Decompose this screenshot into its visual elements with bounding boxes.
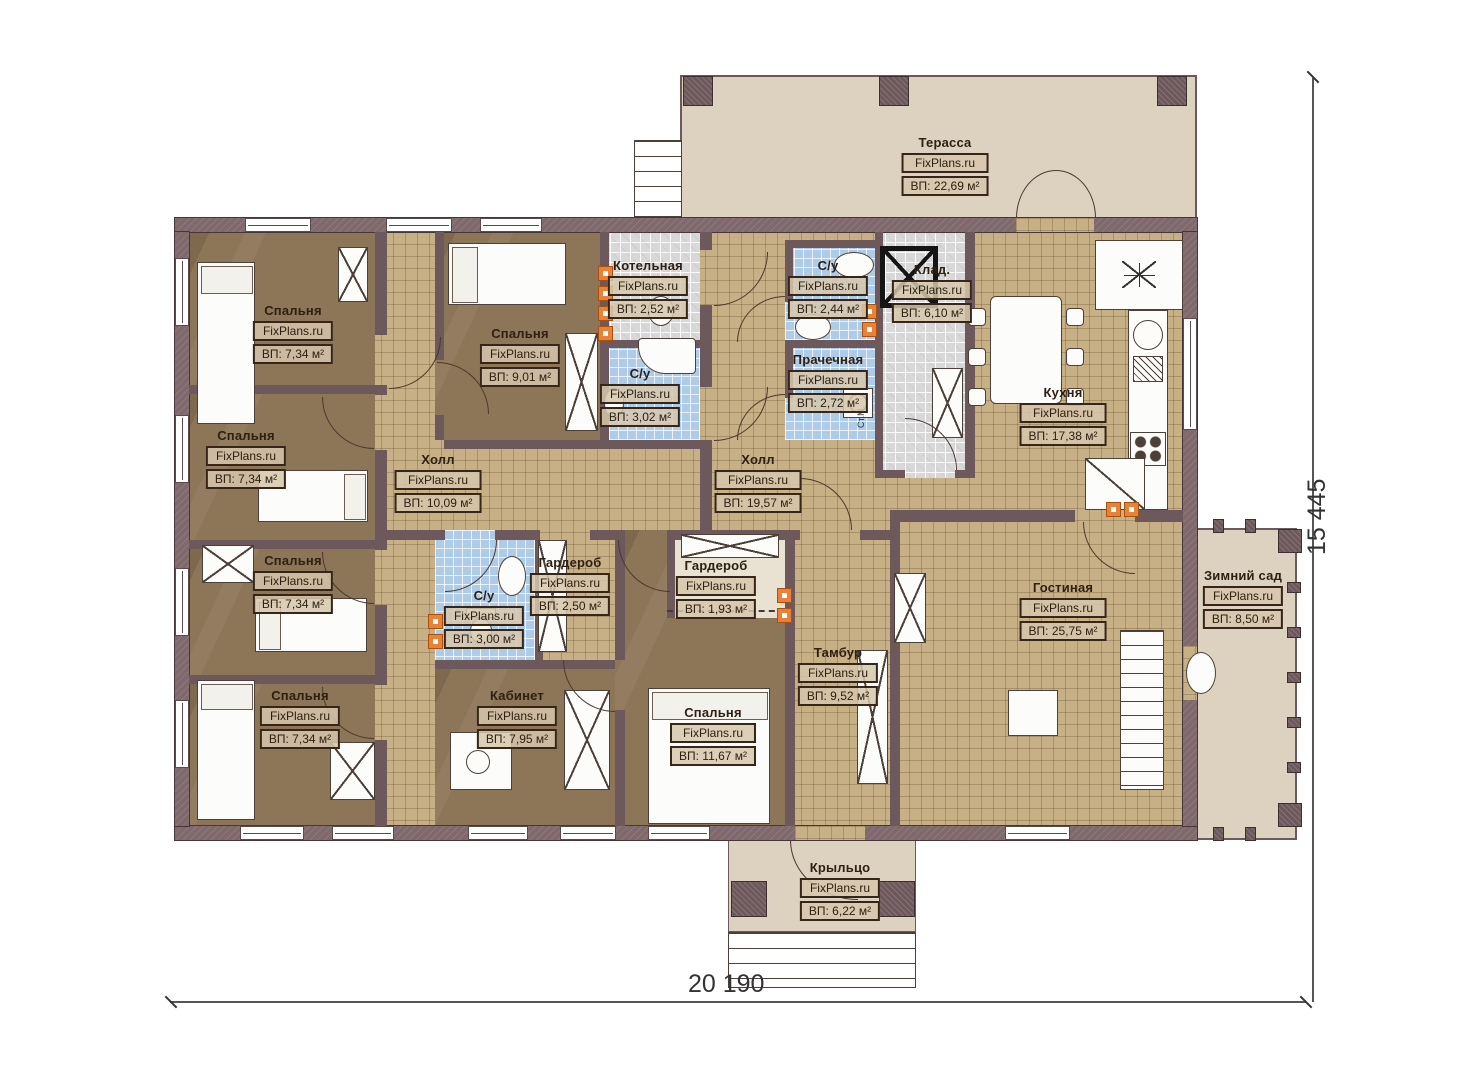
desk-chair	[466, 750, 490, 774]
room-area: ВП: 25,75 м²	[1020, 621, 1107, 641]
vent-marker	[598, 326, 613, 341]
coffee-table	[1008, 690, 1058, 736]
room-area: ВП: 1,93 м²	[676, 599, 756, 619]
bed-pillow	[201, 684, 253, 710]
wardrobe	[565, 333, 598, 431]
wall-segment	[1135, 510, 1183, 522]
wardrobe	[932, 368, 963, 438]
room-label-porch: КрыльцоFixPlans.ruВП: 6,22 м²	[800, 860, 880, 921]
vent-marker	[428, 614, 443, 629]
room-name: Кухня	[1020, 385, 1107, 400]
terrace-side-steps	[634, 140, 682, 218]
room-label-bedroom: СпальняFixPlans.ruВП: 7,34 м²	[206, 428, 286, 489]
porch-column	[732, 882, 766, 916]
garden-post	[1288, 718, 1300, 727]
room-name: Прачечная	[788, 352, 868, 367]
watermark-text: FixPlans.ru	[670, 723, 756, 743]
watermark-text: FixPlans.ru	[530, 573, 610, 593]
room-label-living: ГостинаяFixPlans.ruВП: 25,75 м²	[1020, 580, 1107, 641]
watermark-text: FixPlans.ru	[206, 446, 286, 466]
wardrobe	[338, 247, 368, 302]
room-label-boiler: КотельнаяFixPlans.ruВП: 2,52 м²	[608, 258, 688, 319]
freezer-symbol	[1095, 240, 1183, 310]
fridge	[1133, 356, 1163, 382]
wall-segment	[387, 530, 445, 540]
watermark-text: FixPlans.ru	[477, 706, 557, 726]
front-door-opening	[795, 826, 865, 840]
window	[175, 700, 189, 768]
room-label-wc: С/уFixPlans.ruВП: 2,44 м²	[788, 258, 868, 319]
wall-segment	[700, 232, 712, 250]
wall-segment	[495, 530, 540, 540]
wall-segment	[700, 305, 712, 387]
room-area: ВП: 3,00 м²	[444, 629, 524, 649]
wall-segment	[375, 605, 387, 685]
wall-segment	[955, 470, 975, 478]
chair	[968, 388, 986, 406]
room-name: Гостиная	[1020, 580, 1107, 595]
dimension-height: 15 445	[1303, 479, 1332, 555]
watermark-text: FixPlans.ru	[600, 384, 680, 404]
wardrobe	[894, 573, 926, 643]
wardrobe	[681, 534, 779, 558]
window	[468, 826, 528, 840]
room-area: ВП: 2,50 м²	[530, 596, 610, 616]
chair	[968, 348, 986, 366]
wall-segment	[875, 470, 905, 478]
garden-post	[1214, 828, 1223, 840]
room-area: ВП: 7,34 м²	[206, 469, 286, 489]
garden-post	[1288, 628, 1300, 637]
room-label-closet: ГардеробFixPlans.ruВП: 2,50 м²	[530, 555, 610, 616]
watermark-text: FixPlans.ru	[1020, 598, 1107, 618]
wall-segment	[615, 710, 625, 826]
window	[245, 218, 311, 232]
room-area: ВП: 6,10 м²	[892, 303, 972, 323]
watermark-text: FixPlans.ru	[788, 276, 868, 296]
room-name: С/у	[444, 588, 524, 603]
watermark-text: FixPlans.ru	[253, 321, 333, 341]
room-name: Клад.	[892, 262, 972, 277]
wall-segment	[785, 240, 875, 248]
room-area: ВП: 6,22 м²	[800, 901, 880, 921]
watermark-text: FixPlans.ru	[798, 663, 878, 683]
chair	[1066, 308, 1084, 326]
watermark-text: FixPlans.ru	[902, 153, 989, 173]
room-name: Гардероб	[676, 558, 756, 573]
watermark-text: FixPlans.ru	[892, 280, 972, 300]
room-name: Спальня	[253, 303, 333, 318]
room-area: ВП: 22,69 м²	[902, 176, 989, 196]
vent-marker	[1124, 502, 1139, 517]
room-name: Котельная	[608, 258, 688, 273]
wall-segment	[860, 530, 890, 540]
window	[1183, 318, 1197, 430]
garden-post	[1246, 828, 1255, 840]
watermark-text: FixPlans.ru	[608, 276, 688, 296]
room-name: Терасса	[902, 135, 989, 150]
garden-post	[1279, 804, 1301, 826]
vent-marker	[862, 322, 877, 337]
room-name: Зимний сад	[1203, 568, 1283, 583]
room-label-winter-garden: Зимний садFixPlans.ruВП: 8,50 м²	[1203, 568, 1283, 629]
dimension-width: 20 190	[688, 970, 764, 999]
room-name: Холл	[395, 452, 482, 467]
watermark-text: FixPlans.ru	[788, 370, 868, 390]
room-name: Кабинет	[477, 688, 557, 703]
garden-door-handle	[1186, 652, 1216, 694]
wall-segment	[793, 340, 875, 348]
wall-segment	[890, 510, 900, 826]
window	[175, 415, 189, 483]
watermark-text: FixPlans.ru	[1020, 403, 1107, 423]
window	[480, 218, 542, 232]
room-area: ВП: 7,34 м²	[253, 594, 333, 614]
garden-post	[1279, 530, 1301, 552]
watermark-text: FixPlans.ru	[1203, 586, 1283, 606]
wall-segment	[375, 450, 387, 550]
floor-plan: Ст.М. ТерассаFixPlans.ruВП: 22,69 м² Спа…	[0, 0, 1473, 1080]
garden-post	[1288, 673, 1300, 682]
room-label-bedroom: СпальняFixPlans.ruВП: 7,34 м²	[260, 688, 340, 749]
wall-segment	[444, 440, 700, 449]
terrace-column	[1158, 77, 1186, 105]
window	[240, 826, 304, 840]
kitchen-sink	[1133, 320, 1163, 350]
room-area: ВП: 9,01 м²	[480, 367, 560, 387]
terrace-column	[880, 77, 908, 105]
dimension-line-bottom	[170, 1001, 1306, 1003]
room-name: Спальня	[253, 553, 333, 568]
room-area: ВП: 11,67 м²	[670, 746, 756, 766]
room-area: ВП: 7,34 м²	[260, 729, 340, 749]
vent-marker	[1106, 502, 1121, 517]
terrace-column	[684, 77, 712, 105]
vent-marker	[428, 634, 443, 649]
room-area: ВП: 10,09 м²	[395, 493, 482, 513]
garden-post	[1288, 763, 1300, 772]
room-name: С/у	[788, 258, 868, 273]
room-area: ВП: 9,52 м²	[798, 686, 878, 706]
room-name: С/у	[600, 366, 680, 381]
room-label-vestibule: ТамбурFixPlans.ruВП: 9,52 м²	[798, 645, 878, 706]
room-name: Спальня	[670, 705, 756, 720]
garden-post	[1246, 520, 1255, 532]
terrace-door-opening	[1016, 218, 1094, 232]
room-name: Спальня	[260, 688, 340, 703]
room-label-terrace: ТерассаFixPlans.ruВП: 22,69 м²	[902, 135, 989, 196]
room-area: ВП: 2,44 м²	[788, 299, 868, 319]
room-label-storage: Клад.FixPlans.ruВП: 6,10 м²	[892, 262, 972, 323]
window	[648, 826, 710, 840]
room-label-hall: ХоллFixPlans.ruВП: 19,57 м²	[715, 452, 802, 513]
room-area: ВП: 7,95 м²	[477, 729, 557, 749]
porch-column	[880, 882, 914, 916]
wall-segment	[890, 510, 1075, 522]
wall-segment	[435, 415, 444, 440]
room-label-bedroom: СпальняFixPlans.ruВП: 9,01 м²	[480, 326, 560, 387]
watermark-text: FixPlans.ru	[715, 470, 802, 490]
room-area: ВП: 2,52 м²	[608, 299, 688, 319]
window	[175, 568, 189, 636]
room-label-bedroom: СпальняFixPlans.ruВП: 11,67 м²	[670, 705, 756, 766]
room-name: Тамбур	[798, 645, 878, 660]
watermark-text: FixPlans.ru	[444, 606, 524, 626]
window	[560, 826, 616, 840]
wall-segment	[375, 232, 387, 335]
window	[386, 218, 452, 232]
room-label-wc: С/уFixPlans.ruВП: 3,00 м²	[444, 588, 524, 649]
bed-pillow	[344, 474, 366, 520]
watermark-text: FixPlans.ru	[800, 878, 880, 898]
room-label-hall: ХоллFixPlans.ruВП: 10,09 м²	[395, 452, 482, 513]
garden-post	[1288, 583, 1300, 592]
room-label-kitchen: КухняFixPlans.ruВП: 17,38 м²	[1020, 385, 1107, 446]
wall-segment	[375, 385, 387, 395]
wall-segment	[785, 530, 795, 826]
garden-post	[1214, 520, 1223, 532]
room-area: ВП: 7,34 м²	[253, 344, 333, 364]
room-label-laundry: ПрачечнаяFixPlans.ruВП: 2,72 м²	[788, 352, 868, 413]
room-area: ВП: 3,02 м²	[600, 407, 680, 427]
wall-segment	[700, 440, 712, 530]
window	[175, 258, 189, 326]
sofa	[1120, 630, 1164, 790]
window	[332, 826, 394, 840]
room-area: ВП: 17,38 м²	[1020, 426, 1107, 446]
room-name: Крыльцо	[800, 860, 880, 875]
watermark-text: FixPlans.ru	[260, 706, 340, 726]
room-area: ВП: 19,57 м²	[715, 493, 802, 513]
room-label-bedroom: СпальняFixPlans.ruВП: 7,34 м²	[253, 553, 333, 614]
room-label-closet: ГардеробFixPlans.ruВП: 1,93 м²	[676, 558, 756, 619]
room-area: ВП: 2,72 м²	[788, 393, 868, 413]
watermark-text: FixPlans.ru	[253, 571, 333, 591]
wall-segment	[590, 530, 618, 540]
room-label-study: КабинетFixPlans.ruВП: 7,95 м²	[477, 688, 557, 749]
chair	[1066, 348, 1084, 366]
bed-pillow	[452, 247, 478, 303]
watermark-text: FixPlans.ru	[480, 344, 560, 364]
room-name: Спальня	[206, 428, 286, 443]
room-label-wc: С/уFixPlans.ruВП: 3,02 м²	[600, 366, 680, 427]
vent-marker	[777, 588, 792, 603]
wardrobe	[330, 742, 375, 800]
vent-marker	[777, 608, 792, 623]
room-area: ВП: 8,50 м²	[1203, 609, 1283, 629]
watermark-text: FixPlans.ru	[676, 576, 756, 596]
wardrobe	[202, 545, 254, 583]
wall-segment	[375, 740, 387, 826]
room-label-bedroom: СпальняFixPlans.ruВП: 7,34 м²	[253, 303, 333, 364]
room-name: Гардероб	[530, 555, 610, 570]
bed-pillow	[201, 266, 253, 294]
room-name: Спальня	[480, 326, 560, 341]
room-name: Холл	[715, 452, 802, 467]
window	[1005, 826, 1070, 840]
watermark-text: FixPlans.ru	[395, 470, 482, 490]
